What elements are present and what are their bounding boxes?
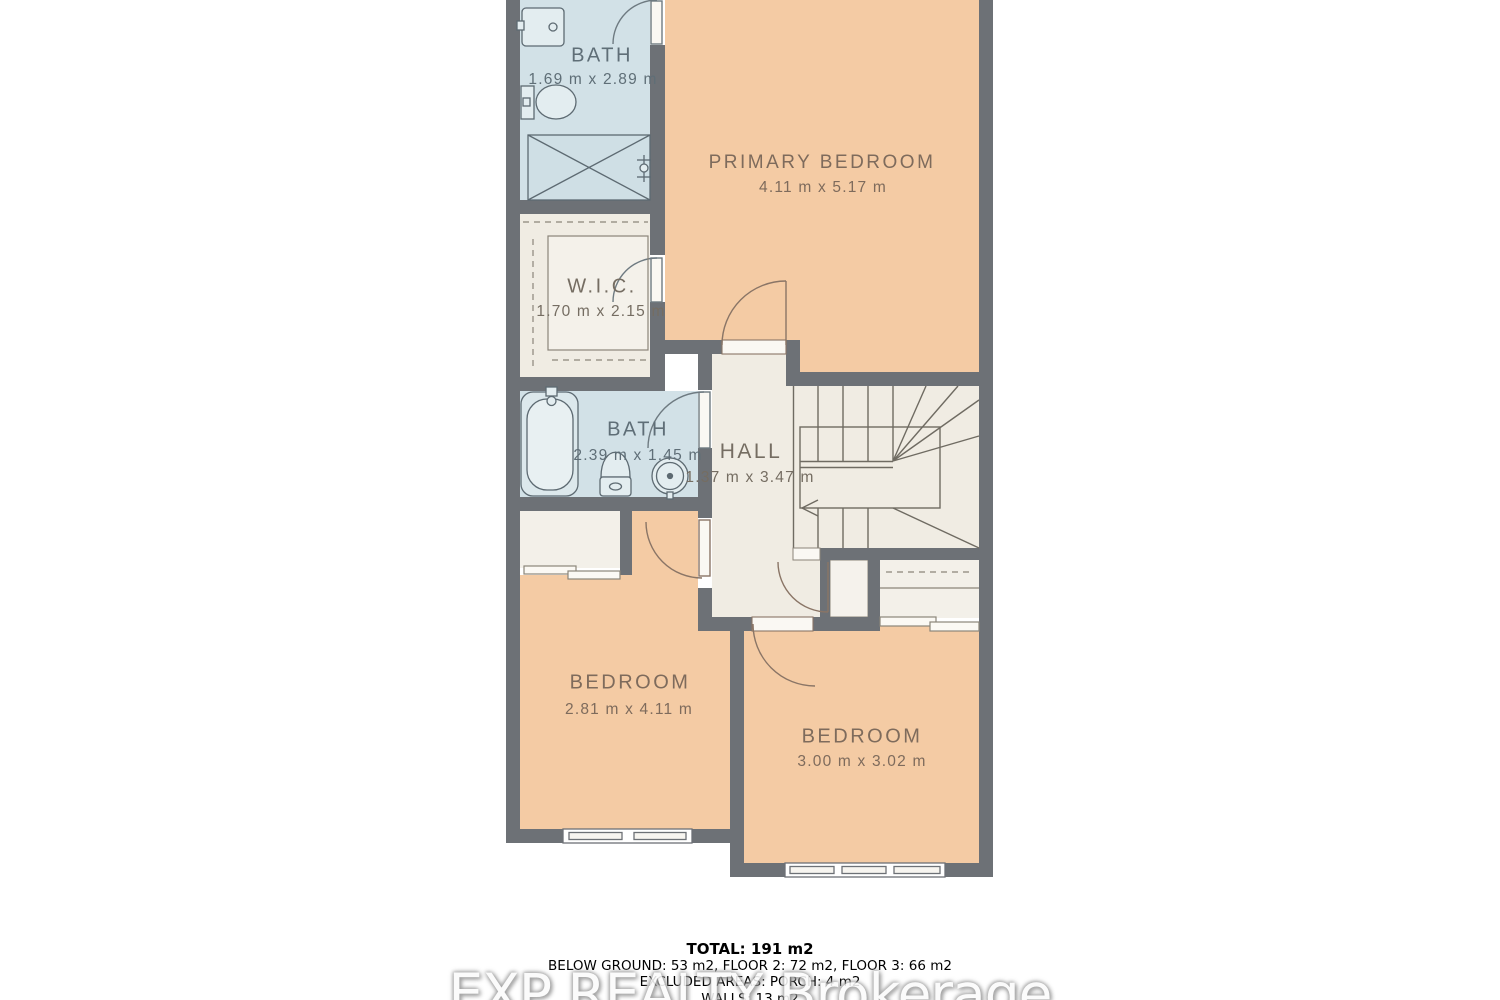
dims-primary-bedroom: 4.11 m x 5.17 m (759, 179, 887, 197)
linen-closet (830, 560, 868, 617)
dims-bath-main: 2.39 m x 1.45 m (573, 447, 702, 465)
floor-plan-drawing (0, 0, 1500, 1000)
vanity-sink-icon (517, 8, 564, 46)
landing-floor (793, 560, 820, 617)
label-primary-bedroom: PRIMARY BEDROOM (709, 152, 936, 174)
label-wic: W.I.C. (567, 276, 636, 299)
dims-bedroom-right: 3.00 m x 3.02 m (797, 753, 926, 771)
label-bath-main: BATH (607, 419, 669, 442)
label-hall: HALL (720, 440, 783, 464)
shower-icon (528, 135, 651, 200)
bathtub-icon (521, 387, 578, 496)
dims-bath-ensuite: 1.69 m x 2.89 m (528, 71, 657, 89)
dims-bedroom-left: 2.81 m x 4.11 m (565, 701, 693, 719)
window-bedroom-right (785, 863, 945, 877)
window-bedroom-left (563, 829, 692, 843)
floor-plan-page: BATH 1.69 m x 2.89 m PRIMARY BEDROOM 4.1… (0, 0, 1500, 1000)
closet-right-bedroom (880, 560, 979, 618)
toilet-ensuite-icon (521, 85, 576, 119)
stair-opening-sill (793, 548, 820, 560)
label-bedroom-left: BEDROOM (570, 672, 691, 695)
closet-left-bedroom (520, 511, 620, 568)
label-bath-ensuite: BATH (571, 45, 633, 68)
label-bedroom-right: BEDROOM (802, 726, 923, 749)
dims-wic: 1.70 m x 2.15 m (536, 303, 665, 321)
brokerage-watermark: EXP REALTY Brokerage (449, 962, 1052, 1000)
total-area-line: TOTAL: 191 m2 (0, 941, 1500, 958)
dims-hall: 1.37 m x 3.47 m (685, 469, 814, 487)
